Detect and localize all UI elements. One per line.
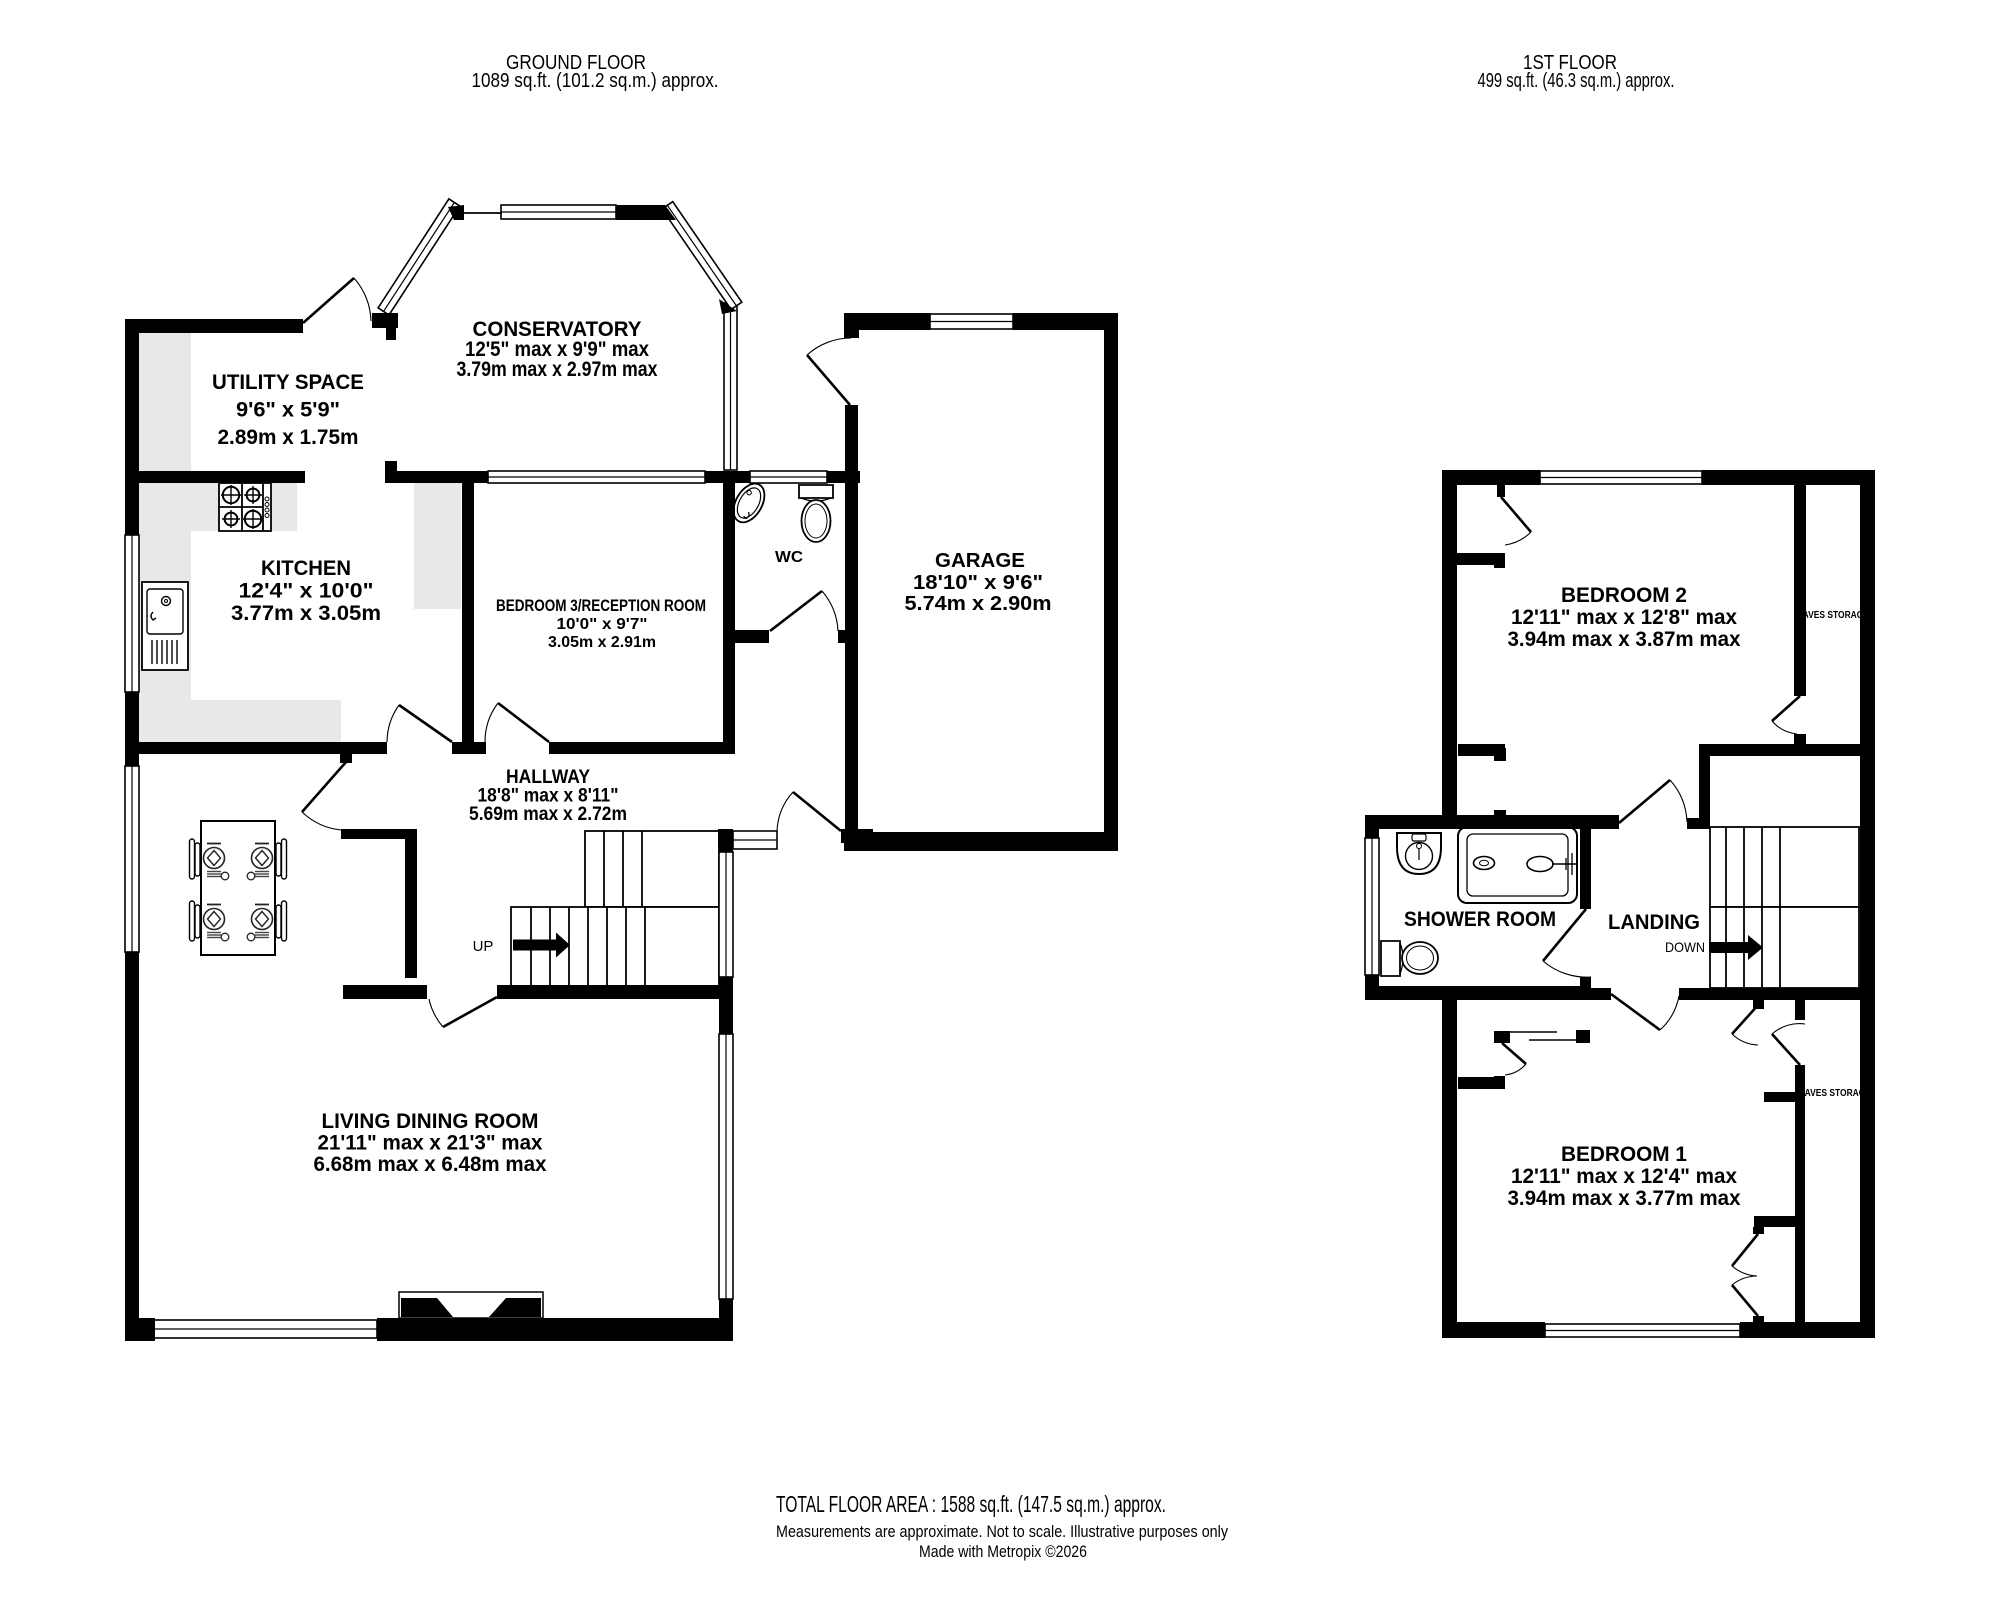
svg-text:BEDROOM 3/RECEPTION ROOM: BEDROOM 3/RECEPTION ROOM [496,597,706,615]
svg-text:UP: UP [473,938,494,955]
svg-text:12'11" max x 12'8" max: 12'11" max x 12'8" max [1511,606,1737,629]
svg-text:WC: WC [775,549,803,566]
svg-text:21'11" max x 21'3" max: 21'11" max x 21'3" max [318,1132,543,1155]
svg-text:3.94m max x 3.77m max: 3.94m max x 3.77m max [1508,1187,1741,1210]
svg-text:SHOWER ROOM: SHOWER ROOM [1404,908,1556,931]
svg-text:Made with Metropix ©2026: Made with Metropix ©2026 [919,1542,1087,1561]
svg-text:499 sq.ft. (46.3 sq.m.) approx: 499 sq.ft. (46.3 sq.m.) approx. [1478,70,1675,92]
svg-text:LANDING: LANDING [1608,911,1700,934]
svg-text:5.69m max x 2.72m: 5.69m max x 2.72m [469,804,627,825]
svg-text:UTILITY SPACE: UTILITY SPACE [212,371,364,394]
svg-text:LIVING DINING ROOM: LIVING DINING ROOM [322,1110,539,1133]
svg-text:DOWN: DOWN [1665,939,1705,955]
svg-text:9'6" x 5'9": 9'6" x 5'9" [236,399,340,422]
svg-text:1089 sq.ft. (101.2 sq.m.) appr: 1089 sq.ft. (101.2 sq.m.) approx. [472,70,719,92]
svg-text:3.05m x 2.91m: 3.05m x 2.91m [548,634,656,651]
svg-text:Measurements are approximate.: Measurements are approximate. Not to sca… [776,1522,1228,1541]
svg-text:EAVES STORAGE: EAVES STORAGE [1797,610,1869,621]
svg-text:3.79m max x 2.97m max: 3.79m max x 2.97m max [457,358,658,381]
svg-text:12'11" max x 12'4" max: 12'11" max x 12'4" max [1511,1165,1737,1188]
svg-text:BEDROOM 1: BEDROOM 1 [1561,1143,1687,1166]
svg-text:2.89m x 1.75m: 2.89m x 1.75m [218,426,359,449]
svg-text:TOTAL FLOOR AREA : 1588 sq.ft.: TOTAL FLOOR AREA : 1588 sq.ft. (147.5 sq… [776,1491,1166,1517]
svg-text:18'10" x 9'6": 18'10" x 9'6" [913,572,1043,594]
svg-text:12'4" x 10'0": 12'4" x 10'0" [239,580,374,603]
svg-text:3.77m x 3.05m: 3.77m x 3.05m [231,602,381,625]
svg-text:3.94m max x 3.87m max: 3.94m max x 3.87m max [1508,628,1741,651]
svg-text:6.68m max x 6.48m max: 6.68m max x 6.48m max [314,1153,547,1176]
svg-text:GARAGE: GARAGE [935,550,1025,572]
svg-text:KITCHEN: KITCHEN [261,557,351,580]
svg-text:BEDROOM 2: BEDROOM 2 [1561,584,1687,607]
svg-text:10'0" x 9'7": 10'0" x 9'7" [557,616,648,633]
svg-text:5.74m x 2.90m: 5.74m x 2.90m [905,593,1052,615]
